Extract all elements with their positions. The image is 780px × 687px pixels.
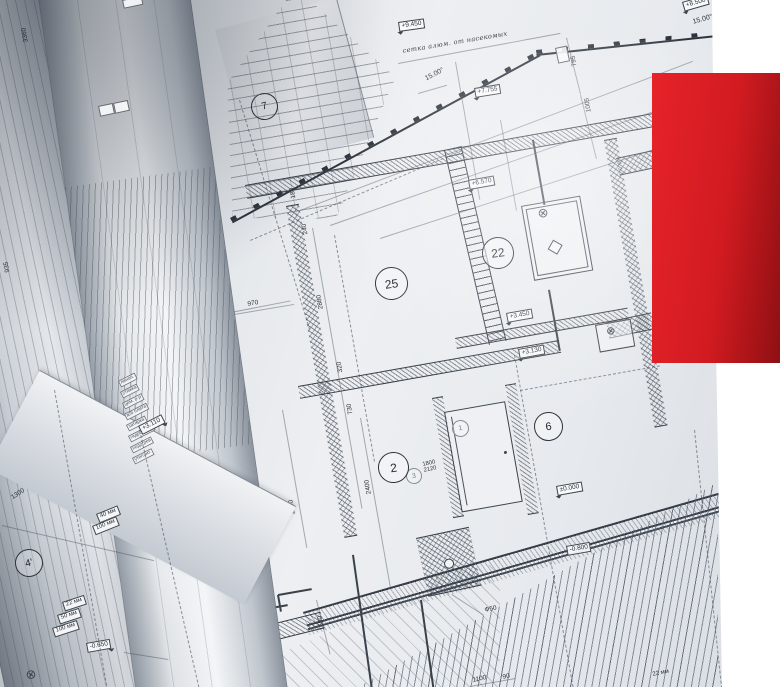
dimension-label: 240 bbox=[301, 223, 310, 235]
hero-image: ⊗ ⊗ 1 bbox=[0, 0, 780, 687]
room-number-badge: 2 bbox=[376, 450, 411, 485]
window-symbol-icon: ⊗ bbox=[605, 324, 616, 338]
dimension-label: 730 bbox=[346, 403, 355, 415]
elevation-flag-icon bbox=[683, 11, 690, 18]
window-unit-small: ⊗ bbox=[595, 319, 635, 353]
slope-angle-label: 15.00° bbox=[424, 67, 445, 82]
dimension-label: 90 bbox=[502, 672, 511, 680]
dimension-label: 795 bbox=[570, 55, 579, 67]
elevation-flag-icon bbox=[518, 358, 525, 365]
axis-dash-line bbox=[334, 235, 375, 462]
slope-arrow-line bbox=[418, 85, 447, 94]
note-mesh: сетка алюм. от насекомых bbox=[402, 29, 508, 54]
room-number-badge: 6 bbox=[532, 410, 565, 443]
elevation-label: ±0.000 bbox=[556, 482, 583, 496]
elevation-label: +9.450 bbox=[398, 18, 425, 32]
elevation-flag-icon bbox=[556, 495, 563, 502]
elevation-flag-icon bbox=[474, 97, 481, 104]
door-size-label: 18002120 bbox=[422, 459, 437, 473]
window-unit: ⊗ bbox=[521, 196, 593, 281]
elevation-flag-icon bbox=[506, 322, 513, 329]
slope-angle-label: 15.00° bbox=[692, 13, 713, 25]
red-accent-rectangle bbox=[652, 73, 780, 363]
elevation-label: +3.450 bbox=[506, 308, 533, 322]
elevation-flag-icon bbox=[468, 189, 475, 196]
dim-line bbox=[282, 410, 307, 548]
room-number-badge: 25 bbox=[373, 265, 410, 302]
elevation-flag-icon bbox=[109, 648, 116, 655]
dim-line bbox=[360, 418, 391, 588]
foundation-block bbox=[416, 527, 481, 597]
elevation-label: +8.500 bbox=[682, 0, 710, 12]
dimension-label: 320 bbox=[336, 361, 345, 373]
elevation-label: +6.570 bbox=[468, 175, 495, 189]
wall-fragment bbox=[616, 150, 657, 176]
elevation-flag-icon bbox=[397, 31, 404, 38]
axis-dash-line bbox=[520, 365, 660, 391]
